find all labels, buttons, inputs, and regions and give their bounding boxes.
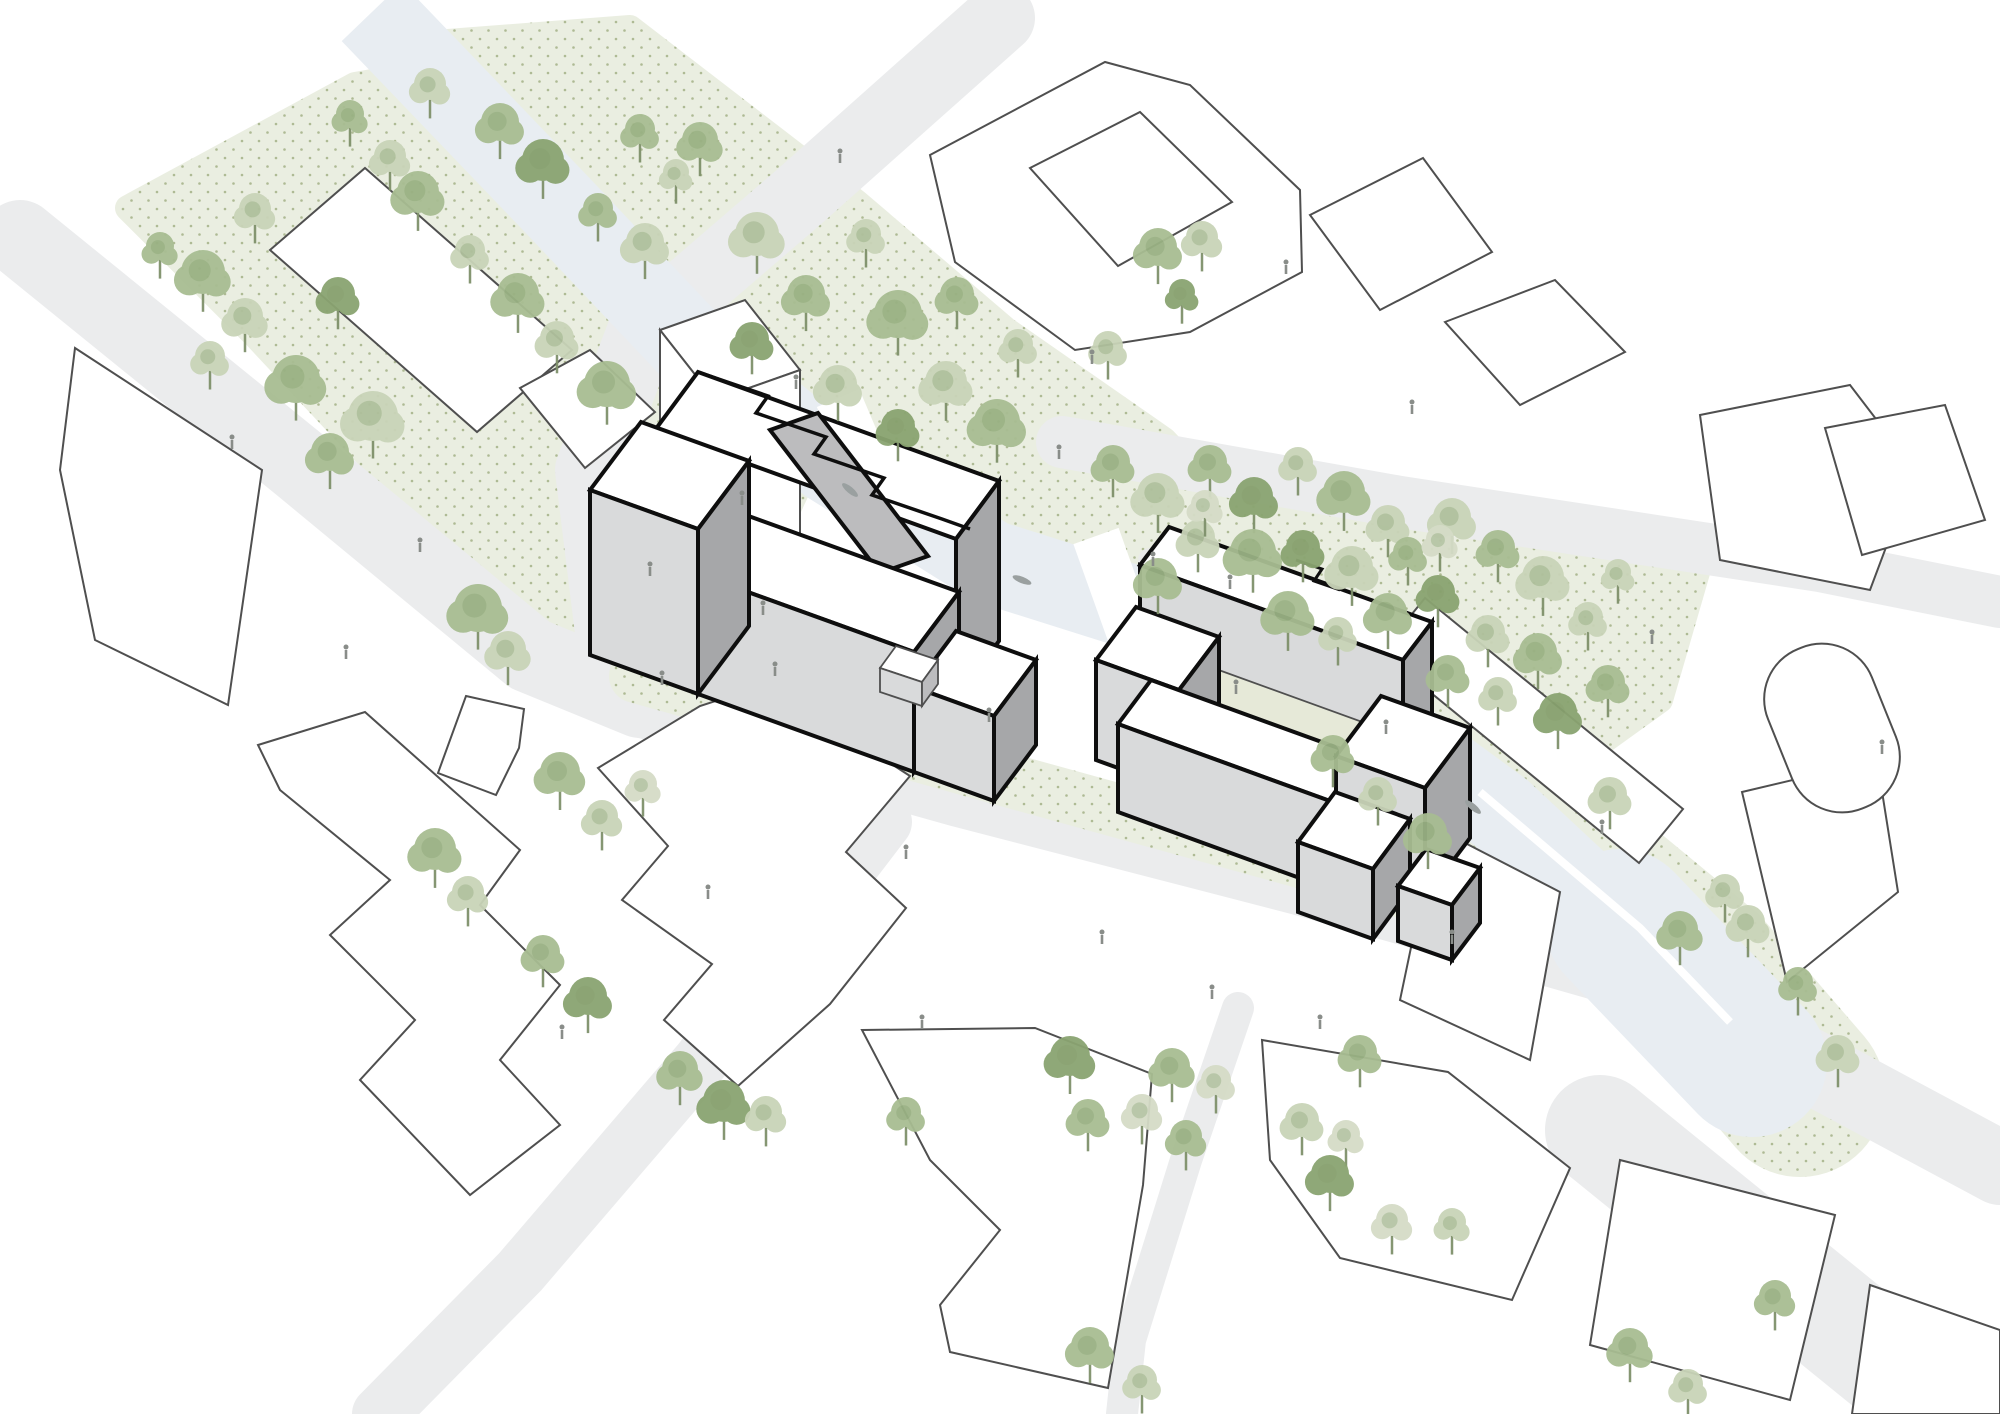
tree-canopy-shade xyxy=(547,761,567,781)
tree-canopy-shade xyxy=(1440,507,1459,526)
person-head xyxy=(560,1025,565,1030)
tree-canopy-shade xyxy=(756,1104,772,1120)
tree-canopy-shade xyxy=(546,330,563,347)
person-head xyxy=(920,1015,925,1020)
tree-canopy-shade xyxy=(1132,1102,1148,1118)
tree-canopy-shade xyxy=(1238,538,1261,561)
person-figure xyxy=(1210,985,1215,1000)
tree-canopy-shade xyxy=(1077,1108,1094,1125)
person-head xyxy=(1100,930,1105,935)
tree-canopy-shade xyxy=(1668,920,1686,938)
tree-canopy-shade xyxy=(327,286,344,303)
tree-canopy-shade xyxy=(688,131,706,149)
tree-canopy-shade xyxy=(1477,624,1494,641)
person-head xyxy=(1228,575,1233,580)
tree-canopy-shade xyxy=(668,1060,686,1078)
tree-canopy-shade xyxy=(743,221,765,243)
tree-canopy-shade xyxy=(1488,685,1503,700)
tree-canopy-shade xyxy=(1160,1057,1178,1075)
person-head xyxy=(794,375,799,380)
tree-canopy-shade xyxy=(151,240,165,254)
tree-canopy-shade xyxy=(1578,610,1593,625)
diamond-block-northeast xyxy=(1310,158,1492,310)
person-head xyxy=(1090,350,1095,355)
tree xyxy=(1148,1048,1194,1102)
tree-canopy-shade xyxy=(630,122,645,137)
person-figure xyxy=(344,645,349,660)
person-head xyxy=(1600,820,1605,825)
block-south-center xyxy=(862,1028,1152,1388)
tree-canopy-shade xyxy=(826,374,845,393)
tree-canopy-shade xyxy=(233,307,251,325)
tree-canopy-shade xyxy=(588,201,603,216)
person-head xyxy=(1284,260,1289,265)
tree-canopy-shade xyxy=(1330,480,1351,501)
tree-canopy-shade xyxy=(946,286,963,303)
site-plan-drawing xyxy=(0,0,2000,1414)
tree-canopy-shade xyxy=(1618,1337,1636,1355)
tree-canopy-shade xyxy=(668,167,681,180)
person-head xyxy=(1410,400,1415,405)
tree-canopy-shade xyxy=(1398,545,1413,560)
person-head xyxy=(1880,740,1885,745)
tree-canopy-shade xyxy=(1291,1112,1308,1129)
tree-canopy-shade xyxy=(1737,914,1754,931)
tree-canopy-shade xyxy=(794,284,813,303)
tree-canopy-shade xyxy=(882,300,906,324)
tree-canopy-shade xyxy=(245,201,261,217)
tree-canopy-shade xyxy=(200,349,215,364)
tree-canopy-shade xyxy=(189,259,211,281)
block-junction-south xyxy=(438,696,524,795)
tree-canopy-shade xyxy=(1328,625,1343,640)
tree-canopy-shade xyxy=(1377,514,1394,531)
tree-canopy-shade xyxy=(404,180,425,201)
tree-canopy-shade xyxy=(496,640,514,658)
tree-canopy-shade xyxy=(280,365,304,389)
person-head xyxy=(904,845,909,850)
tree-canopy-shade xyxy=(1610,567,1623,580)
tree-canopy-shade xyxy=(1526,642,1545,661)
tree-canopy-shade xyxy=(592,370,615,393)
tree-canopy-shade xyxy=(1146,237,1165,256)
tree-canopy-shade xyxy=(532,944,549,961)
tree-canopy-shade xyxy=(420,76,436,92)
tree-canopy-shade xyxy=(1242,486,1261,505)
tree-canopy-shade xyxy=(1174,287,1187,300)
person-figure xyxy=(1410,400,1415,415)
person-head xyxy=(1650,630,1655,635)
person-head xyxy=(418,538,423,543)
tree-canopy-shade xyxy=(1788,975,1803,990)
person-head xyxy=(1234,680,1239,685)
tree-canopy-shade xyxy=(1597,674,1614,691)
tree-canopy-shade xyxy=(856,227,871,242)
tree-canopy-shade xyxy=(460,243,475,258)
tree-canopy-shade xyxy=(1206,1073,1221,1088)
person-head xyxy=(773,662,778,667)
person-head xyxy=(1318,1015,1323,1020)
tree-canopy-shade xyxy=(1376,602,1395,621)
tree xyxy=(563,977,612,1033)
tree-canopy-shade xyxy=(1431,533,1445,547)
person-head xyxy=(740,491,745,496)
tree-canopy-shade xyxy=(357,401,382,426)
tree-canopy-shade xyxy=(1487,539,1504,556)
tree-canopy-shade xyxy=(318,442,337,461)
tree-canopy-shade xyxy=(932,370,953,391)
tree-canopy-shade xyxy=(1529,565,1550,586)
tree-canopy-shade xyxy=(1274,600,1295,621)
tree-canopy-shade xyxy=(421,837,442,858)
block-bottom-right-corner xyxy=(1852,1285,2000,1414)
tree-canopy-shade xyxy=(633,232,652,251)
tree-canopy-shade xyxy=(1349,1044,1366,1061)
person-head xyxy=(648,562,653,567)
person-head xyxy=(660,671,665,676)
tree-canopy-shade xyxy=(1416,822,1435,841)
tree-canopy-shade xyxy=(1132,1373,1147,1388)
tree-canopy-shade xyxy=(1382,1212,1398,1228)
tree-canopy-shade xyxy=(1008,337,1023,352)
site-plan-stage xyxy=(0,0,2000,1414)
person-head xyxy=(838,149,843,154)
person-head xyxy=(1057,445,1062,450)
tree-canopy-shade xyxy=(458,884,474,900)
tree-canopy-shade xyxy=(1678,1377,1693,1392)
tree-canopy-shade xyxy=(488,112,507,131)
tree-canopy-shade xyxy=(1437,664,1454,681)
tree-canopy-shade xyxy=(1322,744,1339,761)
person-head xyxy=(1450,930,1455,935)
person-head xyxy=(1151,552,1156,557)
tree-canopy-shade xyxy=(1057,1045,1077,1065)
tree-canopy-shade xyxy=(1427,584,1444,601)
tree-canopy-shade xyxy=(1187,529,1204,546)
tree-canopy-shade xyxy=(1318,1164,1337,1183)
person-head xyxy=(987,708,992,713)
tree-canopy-shade xyxy=(1368,785,1383,800)
tree-canopy-shade xyxy=(1078,1336,1097,1355)
tree-canopy-shade xyxy=(1715,882,1730,897)
tree xyxy=(534,752,586,810)
tree-canopy-shade xyxy=(1338,555,1359,576)
person-figure xyxy=(904,845,909,860)
tree-canopy-shade xyxy=(529,148,550,169)
tree-canopy-shade xyxy=(1443,1216,1457,1230)
tree-canopy-shade xyxy=(982,408,1005,431)
tree-canopy-shade xyxy=(1098,339,1113,354)
tree xyxy=(745,1096,786,1146)
person-head xyxy=(706,885,711,890)
tree-canopy-shade xyxy=(1827,1044,1844,1061)
tree-canopy-shade xyxy=(1102,454,1119,471)
tree-canopy-shade xyxy=(634,778,648,792)
tree-canopy-shade xyxy=(887,418,904,435)
tree-canopy-shade xyxy=(1196,498,1210,512)
tree-canopy-shade xyxy=(341,108,355,122)
tree-canopy-shade xyxy=(1288,455,1303,470)
tree-canopy-shade xyxy=(1176,1128,1192,1144)
tree-canopy-shade xyxy=(1146,567,1165,586)
person-figure xyxy=(1318,1015,1323,1030)
zigzag-complex-southwest xyxy=(258,712,560,1195)
person-figure xyxy=(1100,930,1105,945)
tree-canopy-shade xyxy=(710,1089,731,1110)
tree-canopy-shade xyxy=(1337,1128,1351,1142)
tree-canopy-shade xyxy=(592,808,608,824)
tree-canopy-shade xyxy=(1199,454,1216,471)
tree-canopy-shade xyxy=(462,594,486,618)
block-north-of-grove xyxy=(1445,280,1625,405)
person-head xyxy=(1210,985,1215,990)
block-south-east xyxy=(1262,1040,1570,1300)
tree-canopy-shade xyxy=(1144,482,1165,503)
tree-canopy-shade xyxy=(1292,539,1309,556)
tree-canopy-shade xyxy=(1765,1288,1781,1304)
person-head xyxy=(761,601,766,606)
tree xyxy=(581,800,622,850)
tree-canopy-shade xyxy=(576,986,595,1005)
tree-canopy-shade xyxy=(380,148,396,164)
person-head xyxy=(1384,720,1389,725)
tree-canopy-shade xyxy=(896,1105,911,1120)
tree-canopy-shade xyxy=(741,331,758,348)
tree-canopy-shade xyxy=(1192,229,1208,245)
person-figure xyxy=(920,1015,925,1030)
tree-canopy-shade xyxy=(1546,702,1565,721)
person-figure xyxy=(560,1025,565,1040)
tree-canopy-shade xyxy=(504,282,525,303)
person-head xyxy=(230,435,235,440)
tree-canopy-shade xyxy=(1599,786,1616,803)
person-head xyxy=(344,645,349,650)
block-bottom-right xyxy=(1590,1160,1835,1400)
